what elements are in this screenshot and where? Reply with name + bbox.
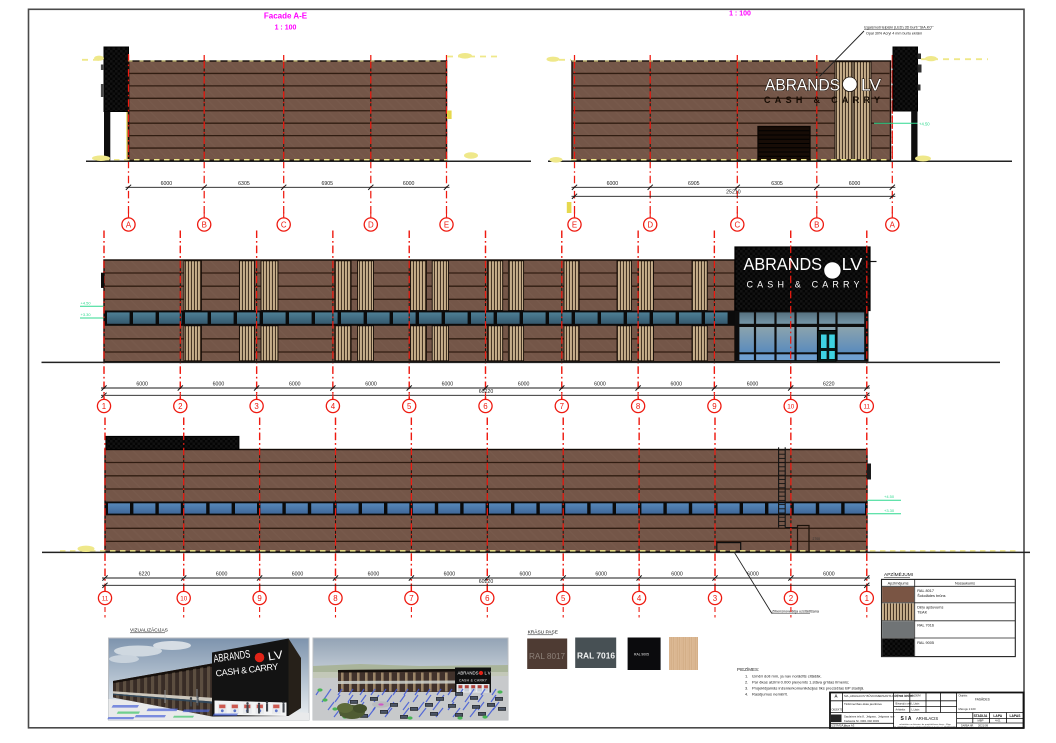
- svg-text:6000: 6000: [365, 382, 377, 388]
- svg-text:6000: 6000: [444, 572, 456, 578]
- svg-text:9: 9: [712, 402, 717, 411]
- svg-text:C: C: [734, 220, 740, 229]
- svg-text:6000: 6000: [594, 382, 606, 388]
- svg-text:6000: 6000: [403, 181, 415, 187]
- svg-text:6000: 6000: [292, 572, 304, 578]
- svg-text:A: A: [126, 220, 132, 229]
- svg-text:8: 8: [333, 594, 338, 603]
- svg-text:KRĀSU PASE: KRĀSU PASE: [528, 629, 558, 636]
- svg-text:tālr. 20000000 e-pasts arhila: tālr. 20000000 e-pasts arhilacis@arhilac…: [893, 725, 958, 728]
- svg-text:C: C: [281, 220, 287, 229]
- svg-text:Projektējamās inženierkomunikā: Projektējamās inženierkomunikācijas tiks…: [752, 686, 864, 691]
- svg-text:6000: 6000: [518, 382, 530, 388]
- svg-text:Tirdzniecības ēkas jaunbūve: Tirdzniecības ēkas jaunbūve: [844, 702, 882, 706]
- svg-text:B: B: [202, 220, 207, 229]
- svg-text:2021/09: 2021/09: [978, 724, 989, 728]
- svg-text:CASH & CARRY: CASH & CARRY: [459, 679, 488, 683]
- svg-text:4-01: 4-01: [995, 719, 1001, 723]
- svg-text:LV: LV: [485, 671, 491, 676]
- svg-text:6000: 6000: [849, 181, 861, 187]
- svg-text:6000: 6000: [670, 382, 682, 388]
- svg-text:D: D: [368, 220, 374, 229]
- svg-text:6305: 6305: [771, 181, 783, 187]
- svg-text:+3.30: +3.30: [81, 312, 92, 317]
- svg-text:Būvproj.iz.vad.: Būvproj.iz.vad.: [896, 703, 913, 706]
- svg-text:E: E: [572, 220, 577, 229]
- svg-text:Mērogs 1:100: Mērogs 1:100: [959, 707, 977, 711]
- svg-text:Izmēri doti mm, ja nav norādīt: Izmēri doti mm, ja nav norādīts citādāk.: [752, 673, 822, 678]
- svg-text:RAL 8017: RAL 8017: [917, 589, 934, 593]
- svg-text:2.: 2.: [745, 679, 748, 684]
- svg-text:OBJEKTS: OBJEKTS: [832, 709, 843, 712]
- svg-text:Kadastra Nr. 0001 002 0003: Kadastra Nr. 0001 002 0003: [844, 719, 879, 723]
- svg-text:FASĀDES: FASĀDES: [975, 698, 990, 702]
- svg-text:TEAK: TEAK: [917, 610, 927, 614]
- svg-text:6: 6: [485, 594, 490, 603]
- svg-text:A: A: [890, 220, 896, 229]
- svg-text:10: 10: [787, 403, 795, 410]
- svg-text:Apzīmējums: Apzīmējums: [888, 581, 909, 585]
- svg-text:Arhitekts: Arhitekts: [896, 709, 906, 712]
- svg-text:5: 5: [561, 594, 566, 603]
- svg-text:60220: 60220: [479, 389, 494, 395]
- svg-text:6000: 6000: [216, 572, 228, 578]
- svg-text:6000: 6000: [607, 181, 619, 187]
- svg-text:Objekts:: Objekts:: [959, 695, 968, 698]
- svg-text:Nosaukums: Nosaukums: [955, 581, 975, 585]
- svg-text:Opal 30% Acryl 4 mm burtu ekrā: Opal 30% Acryl 4 mm burtu ekrāni: [866, 32, 922, 36]
- svg-text:Par ēkas atzīmi 0.000 pieņemts: Par ēkas atzīmi 0.000 pieņemts 1.stāva g…: [752, 679, 849, 684]
- svg-text:6000: 6000: [823, 572, 835, 578]
- svg-text:6305: 6305: [238, 181, 250, 187]
- svg-text:3: 3: [254, 402, 259, 411]
- svg-text:ABRANDS: ABRANDS: [458, 671, 479, 676]
- svg-text:B: B: [814, 220, 819, 229]
- svg-text:RAL 7016: RAL 7016: [917, 623, 934, 627]
- svg-text:4: 4: [637, 594, 642, 603]
- svg-text:60220: 60220: [479, 579, 494, 585]
- svg-text:Dēļu apšuvums: Dēļu apšuvums: [917, 605, 943, 609]
- svg-text:1 : 100: 1 : 100: [275, 25, 297, 32]
- svg-text:ABRANDS: ABRANDS: [765, 76, 840, 95]
- svg-text:6: 6: [483, 402, 488, 411]
- svg-text:2: 2: [789, 594, 793, 603]
- svg-text:25210: 25210: [726, 189, 741, 195]
- svg-text:Lapa A3: Lapa A3: [844, 724, 855, 728]
- svg-text:4.: 4.: [745, 692, 748, 697]
- svg-text:6905: 6905: [321, 181, 333, 187]
- svg-text:LAPAS: LAPAS: [1010, 714, 1022, 718]
- svg-text:APZĪMĒJUMI: APZĪMĒJUMI: [884, 571, 913, 578]
- svg-text:1 : 100: 1 : 100: [729, 11, 751, 18]
- svg-text:10: 10: [180, 595, 188, 602]
- svg-text:6000: 6000: [747, 382, 759, 388]
- svg-text:6000: 6000: [368, 572, 380, 578]
- svg-text:LV: LV: [842, 254, 863, 274]
- svg-text:LAPA: LAPA: [993, 714, 1002, 718]
- svg-text:RAL 9005: RAL 9005: [634, 653, 649, 657]
- svg-text:D: D: [647, 220, 653, 229]
- svg-text:VIZUALIZĀCIJAS: VIZUALIZĀCIJAS: [130, 627, 168, 634]
- svg-text:1.: 1.: [745, 673, 748, 678]
- svg-text:5: 5: [407, 402, 412, 411]
- svg-text:Rasējumus nemērīt.: Rasējumus nemērīt.: [752, 692, 788, 697]
- svg-text:3: 3: [713, 594, 718, 603]
- svg-text:Izgaismoti telpiski (LED) 3D b: Izgaismoti telpiski (LED) 3D burti "SIA.…: [864, 26, 934, 30]
- svg-text:ABRANDS: ABRANDS: [744, 254, 823, 274]
- svg-text:6000: 6000: [671, 572, 683, 578]
- svg-text:+4.50: +4.50: [919, 121, 930, 126]
- svg-text:RAL 7016: RAL 7016: [577, 651, 615, 661]
- svg-text:4: 4: [331, 402, 336, 411]
- svg-text:6905: 6905: [688, 181, 700, 187]
- svg-text:6000: 6000: [136, 382, 148, 388]
- svg-text:11: 11: [102, 595, 109, 602]
- svg-text:1: 1: [102, 402, 106, 411]
- svg-text:7: 7: [560, 402, 564, 411]
- svg-text:RAL 8017: RAL 8017: [529, 652, 566, 661]
- svg-text:L.Lācis: L.Lācis: [912, 703, 921, 706]
- svg-text:S I A: S I A: [901, 716, 912, 722]
- svg-text:L.Lācis: L.Lācis: [912, 709, 921, 712]
- svg-text:6000: 6000: [289, 382, 301, 388]
- svg-text:+4.50: +4.50: [884, 494, 895, 499]
- svg-text:6000: 6000: [747, 572, 759, 578]
- svg-text:Facade A-E: Facade A-E: [264, 12, 308, 21]
- svg-text:6220: 6220: [823, 382, 835, 388]
- svg-text:DARBA NR.: DARBA NR.: [961, 725, 974, 728]
- svg-text:PIEZĪMES:: PIEZĪMES:: [737, 666, 759, 672]
- svg-text:7: 7: [409, 594, 413, 603]
- svg-text:Zibensnovedēja uzstādīšana: Zibensnovedēja uzstādīšana: [772, 610, 820, 614]
- svg-text:6000: 6000: [161, 181, 173, 187]
- svg-text:Šokolādes brūns: Šokolādes brūns: [917, 593, 945, 598]
- svg-text:MBP: MBP: [977, 719, 983, 723]
- svg-text:8: 8: [636, 402, 641, 411]
- svg-text:9: 9: [257, 594, 262, 603]
- svg-text:E: E: [444, 220, 449, 229]
- svg-text:6000: 6000: [595, 572, 607, 578]
- svg-text:6000: 6000: [519, 572, 531, 578]
- svg-text:1:100/M: 1:100/M: [912, 695, 921, 698]
- svg-text:STADIJA: STADIJA: [974, 714, 988, 718]
- svg-text:6000: 6000: [442, 382, 454, 388]
- svg-text:6000: 6000: [213, 382, 225, 388]
- svg-text:3.: 3.: [745, 686, 748, 691]
- svg-text:6220: 6220: [139, 572, 151, 578]
- svg-text:ARHILACIS: ARHILACIS: [916, 716, 938, 721]
- svg-text:LV: LV: [861, 76, 882, 95]
- svg-text:RAL 9005: RAL 9005: [917, 641, 934, 645]
- svg-text:+4.50: +4.50: [81, 300, 92, 305]
- svg-text:11: 11: [864, 403, 871, 410]
- svg-text:1: 1: [865, 594, 869, 603]
- svg-text:2700: 2700: [813, 537, 821, 541]
- svg-text:2: 2: [178, 402, 182, 411]
- svg-text:+3.30: +3.30: [884, 508, 895, 513]
